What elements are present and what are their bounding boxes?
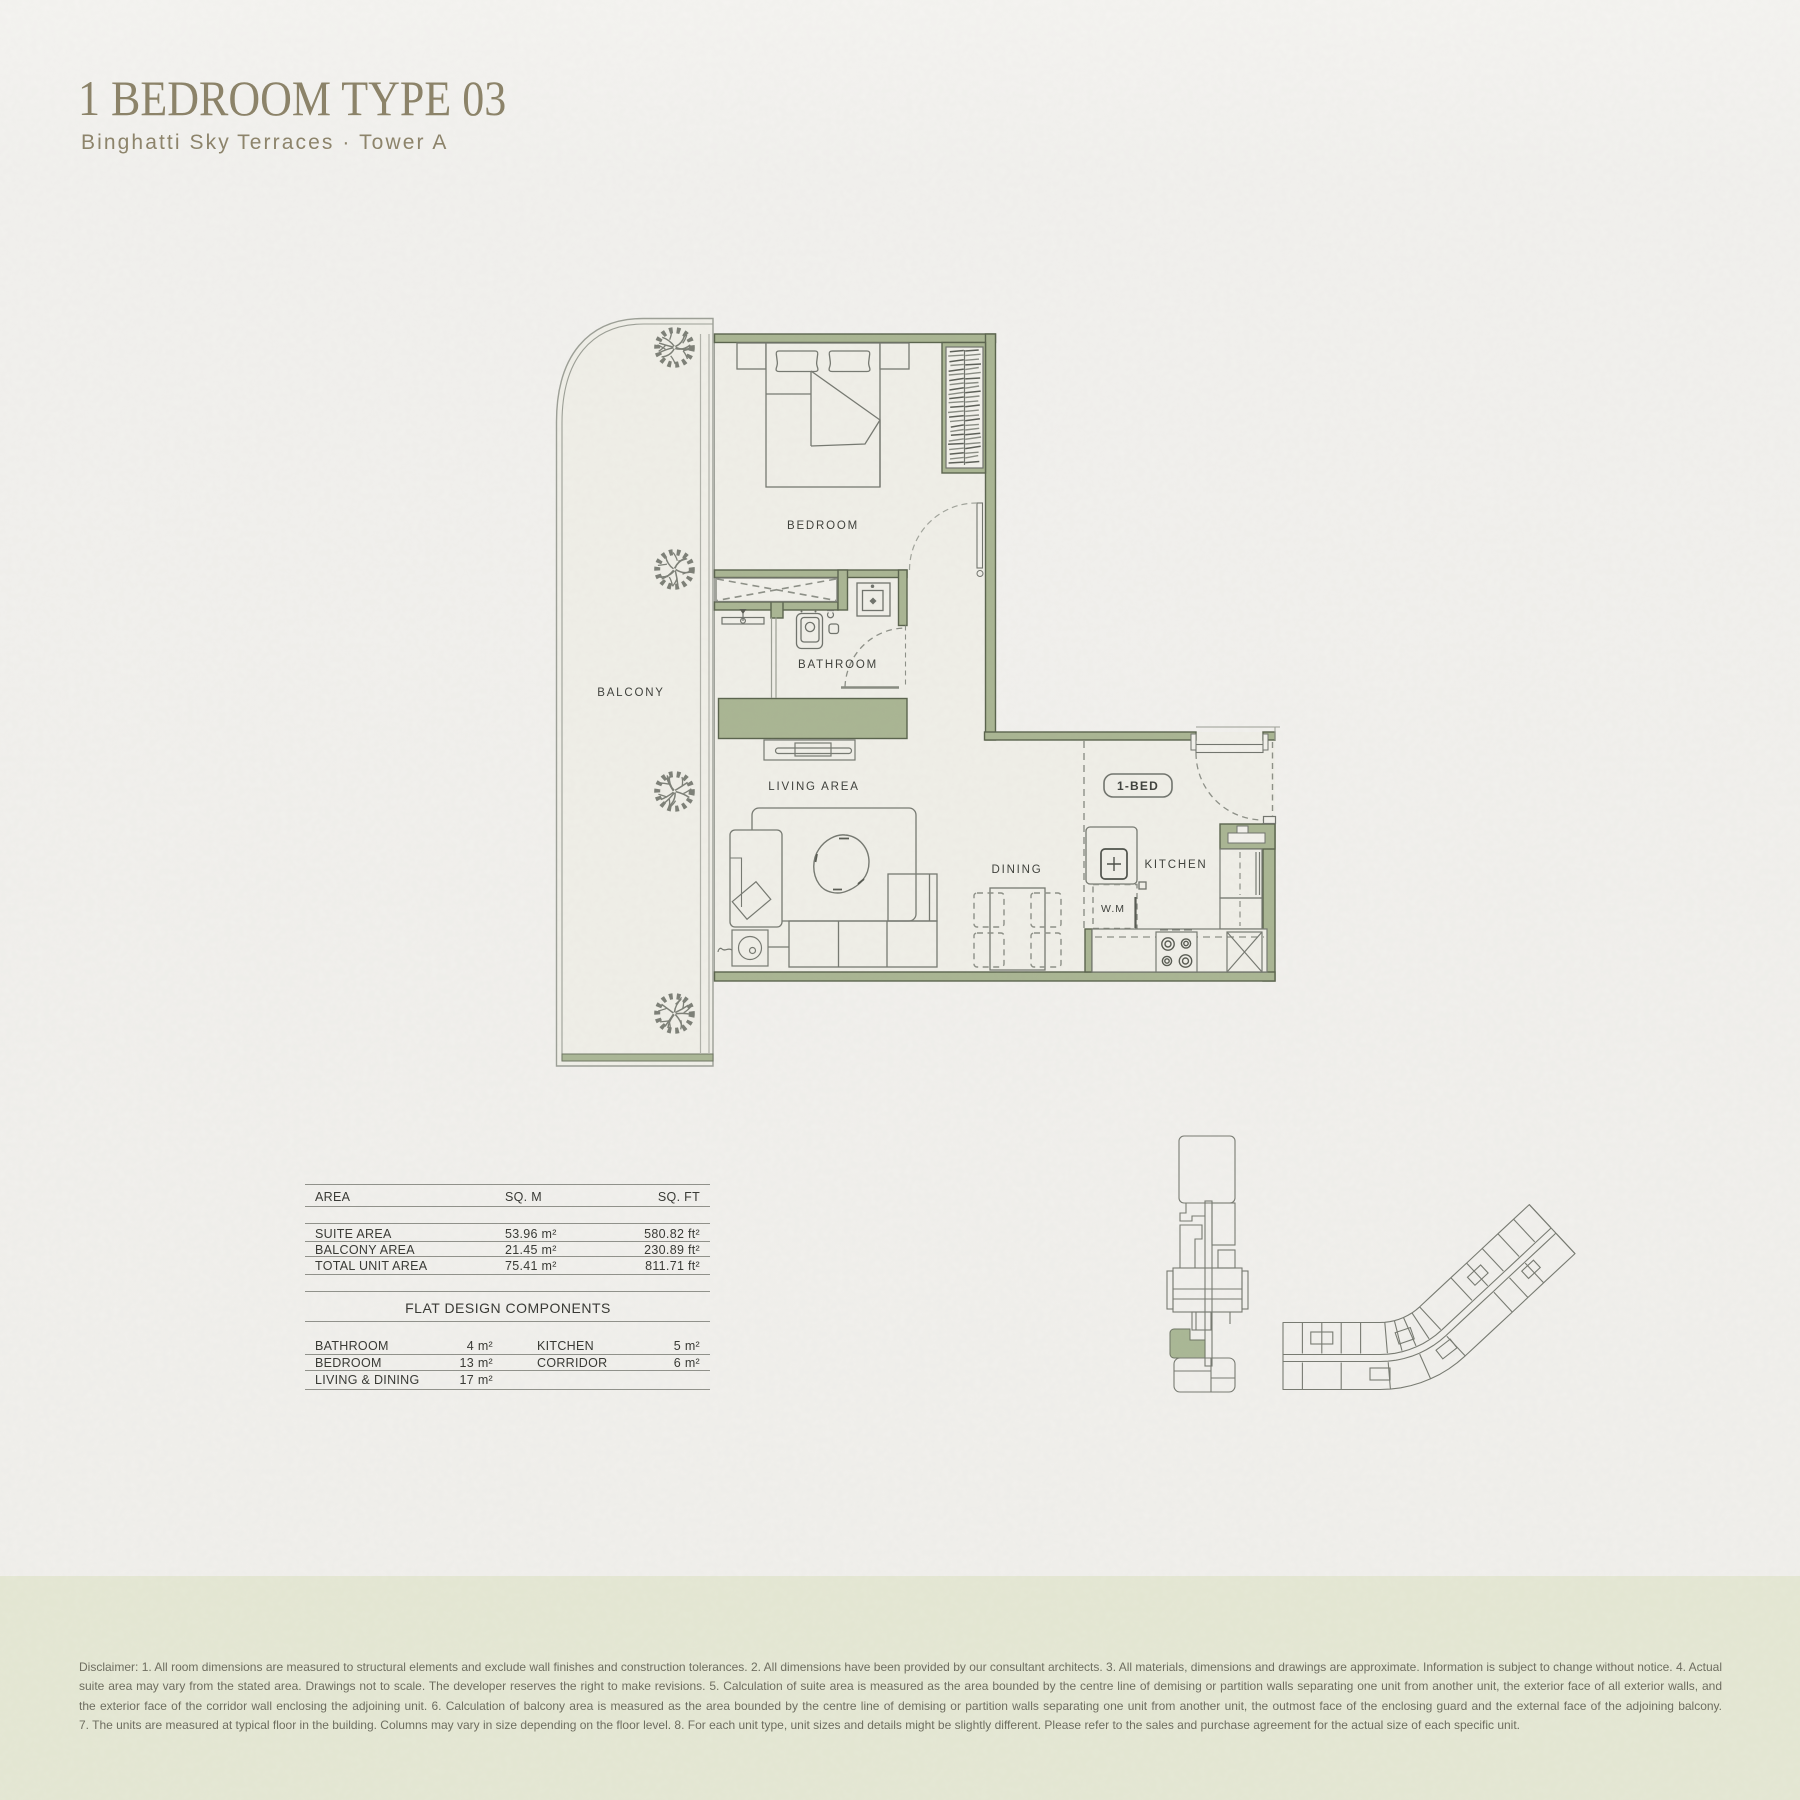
svg-text:LIVING AREA: LIVING AREA xyxy=(768,781,859,793)
svg-text:BATHROOM: BATHROOM xyxy=(798,659,878,671)
svg-text:W.M: W.M xyxy=(1101,903,1125,915)
svg-text:BEDROOM: BEDROOM xyxy=(787,520,859,532)
svg-text:1-BED: 1-BED xyxy=(1117,779,1159,793)
svg-text:DINING: DINING xyxy=(991,864,1042,876)
svg-text:KITCHEN: KITCHEN xyxy=(1144,859,1207,871)
svg-text:BALCONY: BALCONY xyxy=(597,687,665,699)
